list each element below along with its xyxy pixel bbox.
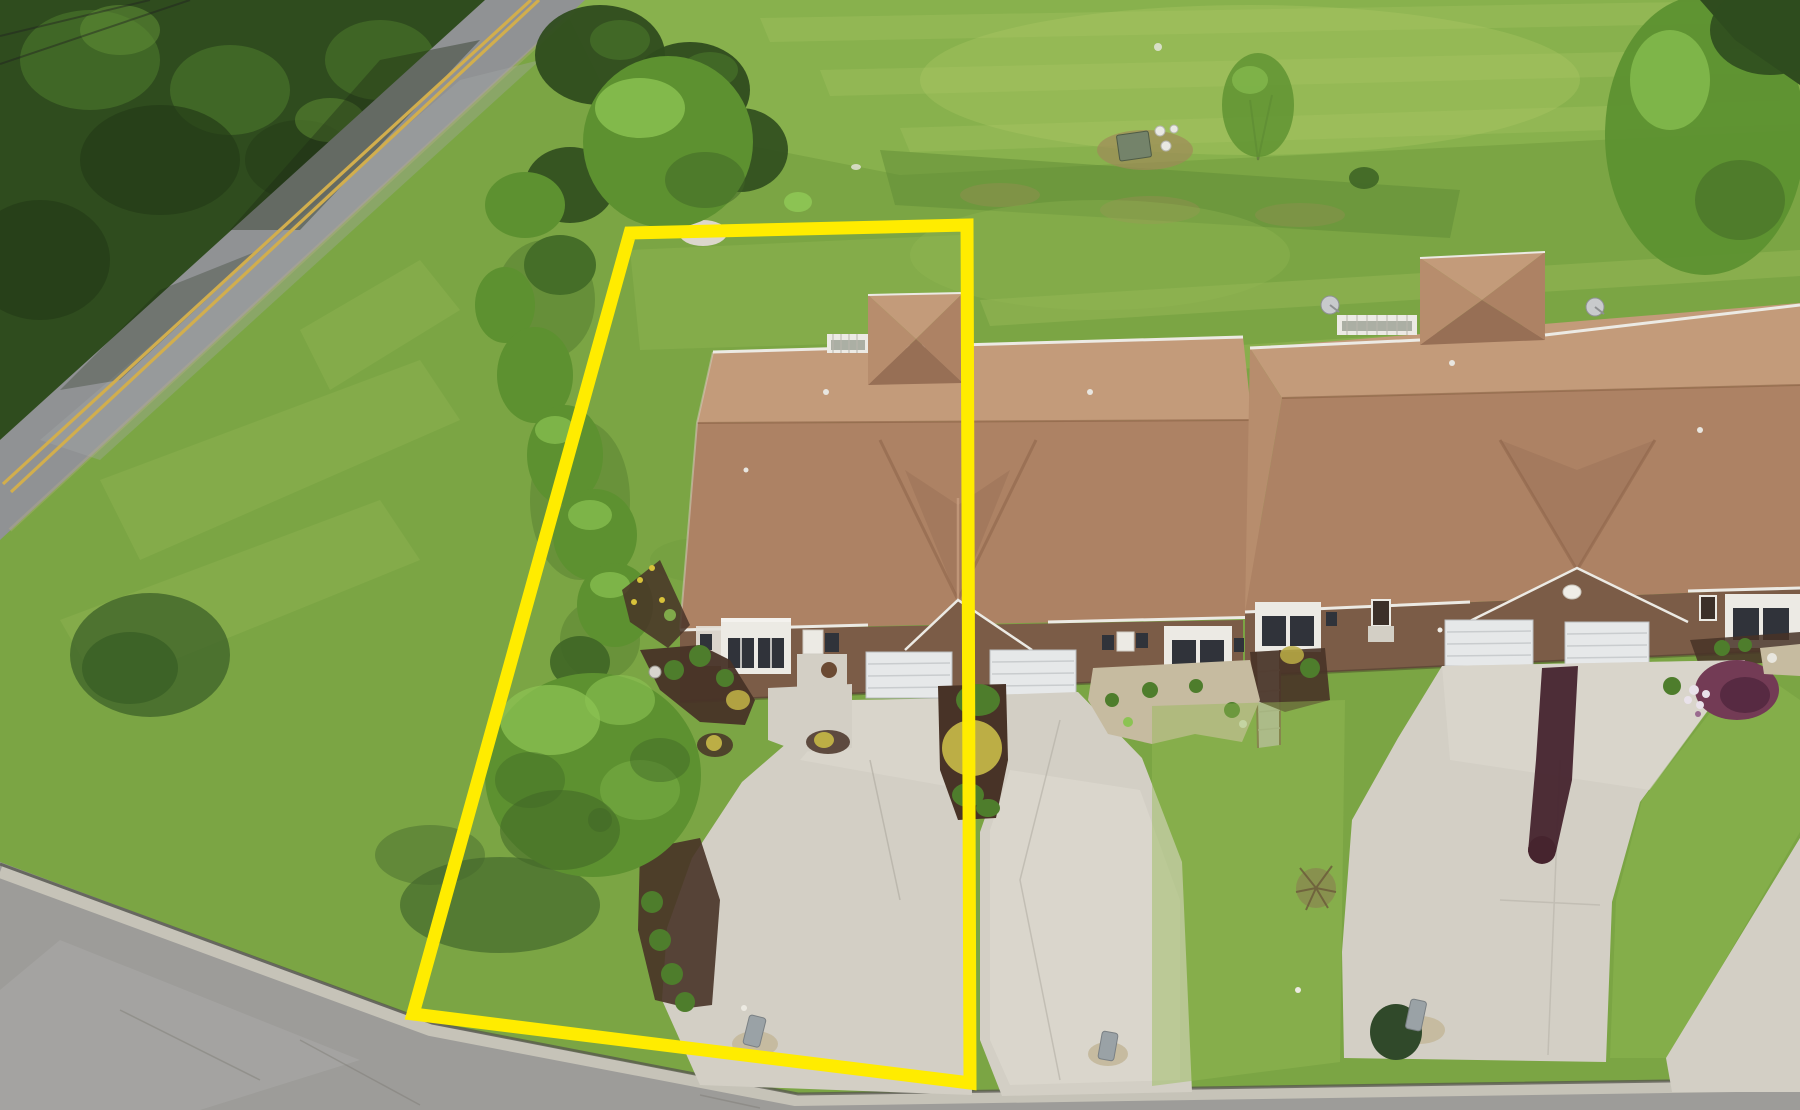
porch-light <box>1438 628 1443 633</box>
forest-shadow <box>80 105 240 215</box>
marker-pipe <box>1161 141 1171 151</box>
white-rock <box>1154 43 1162 51</box>
entry-door <box>1700 596 1716 620</box>
roof-front-slope <box>1245 385 1800 612</box>
rear-cupola <box>868 293 963 385</box>
entry-door <box>1117 632 1134 651</box>
forest-highlight <box>80 5 160 55</box>
roof-vent <box>1087 389 1093 395</box>
dirt-patch <box>1255 203 1345 227</box>
aerial-photo: Aerial drone photo of a duplex-townhome … <box>0 0 1800 1110</box>
field-bush <box>1349 167 1379 189</box>
dirt-patch <box>960 183 1040 207</box>
garage-door-unit4 <box>1565 622 1649 668</box>
tree-highlight <box>595 78 685 138</box>
tree <box>485 172 565 238</box>
roof-vent <box>1697 427 1703 433</box>
rear-deck-rail <box>1337 315 1417 335</box>
sprinkler-head <box>741 1005 747 1011</box>
white-rock <box>1767 653 1777 663</box>
canopy-gap <box>588 808 612 832</box>
satellite-dish <box>1321 296 1339 314</box>
white-debris <box>851 164 861 170</box>
porch-table <box>821 662 837 678</box>
roof-vent <box>744 468 749 473</box>
window <box>1136 633 1148 648</box>
tree-shade <box>495 752 565 808</box>
tree-highlight <box>500 685 600 755</box>
rear-deck-rail <box>827 334 868 353</box>
window <box>1234 638 1244 652</box>
birdbath <box>649 666 661 678</box>
right-edge-tree <box>1605 0 1800 275</box>
hardscape <box>638 644 1800 1096</box>
yellow-bush <box>814 732 834 748</box>
entry-door <box>1372 600 1390 626</box>
porch-pad <box>1368 626 1394 642</box>
entry-unit4 <box>1700 596 1716 620</box>
rear-wing <box>1420 252 1545 345</box>
tree <box>524 235 596 295</box>
utility-cabinet <box>1116 131 1151 161</box>
tree-highlight <box>585 675 655 725</box>
evergreen-highlight <box>590 20 650 60</box>
tree-highlight <box>568 500 612 530</box>
tree-shade <box>630 738 690 782</box>
sprinkler-head <box>1295 987 1301 993</box>
slope-tree <box>82 632 178 704</box>
small-bush <box>784 192 812 212</box>
window <box>1102 635 1114 650</box>
right-edge-rock-bed <box>1760 644 1800 676</box>
roof-vent <box>1449 360 1455 366</box>
garage-door-unit3 <box>1445 620 1533 666</box>
window <box>1326 612 1337 626</box>
marker-pipe <box>1155 126 1165 136</box>
satellite-dish <box>1586 298 1604 316</box>
roof-vent <box>823 389 829 395</box>
aerial-photo-canvas <box>0 0 1800 1110</box>
oval-vent <box>1563 585 1581 599</box>
tree-shade <box>665 152 745 208</box>
sidelight-window <box>825 633 839 652</box>
marker-pipe <box>1170 125 1178 133</box>
entry-door <box>803 630 823 654</box>
